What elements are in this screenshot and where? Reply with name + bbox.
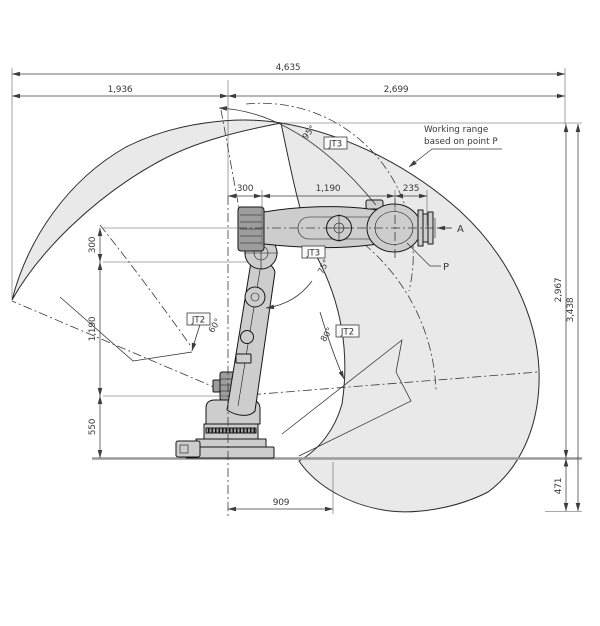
working-range-note-line1: Working range (424, 125, 488, 135)
robot-lower-arm-detail-circle (241, 331, 254, 344)
working-range-note-line2: based on point P (424, 137, 498, 147)
dim-height-upper: 2,967 (554, 278, 564, 303)
dim-height-total: 3,438 (566, 297, 576, 322)
robot-lower-arm-panel (236, 354, 251, 363)
ghost-arm-back-position (60, 297, 192, 361)
robot-working-range-diagram: 4,635 1,936 2,699 300 1,190 235 300 1,19… (0, 0, 600, 626)
jt2-right-angle: 80° (319, 326, 335, 344)
robot-lower-arm-joint (245, 287, 265, 307)
dim-width-left: 1,936 (108, 85, 133, 95)
dim-lower-arm: 1,190 (88, 316, 98, 341)
dim-rear-reach: 909 (273, 498, 290, 508)
working-range-region (12, 120, 539, 512)
robot-base-step (196, 439, 266, 447)
dim-base-height: 550 (88, 418, 98, 435)
dim-depth-below: 471 (554, 478, 564, 495)
working-range-leader (409, 149, 502, 167)
dim-arm-offset: 300 (237, 184, 254, 194)
jt3-mid-label: JT3 (306, 249, 320, 259)
robot-jt1-motor-cap (213, 380, 220, 392)
dim-width-right: 2,699 (384, 85, 409, 95)
jt2-right-label: JT2 (340, 328, 354, 338)
jt3-top-label: JT3 (328, 140, 342, 150)
dim-forearm: 1,190 (316, 184, 341, 194)
point-a-label: A (457, 224, 464, 235)
jt2-left-label: JT2 (191, 316, 205, 326)
dim-total-width: 4,635 (276, 63, 301, 73)
dim-wrist: 235 (403, 184, 420, 194)
dim-shoulder-offset: 300 (88, 236, 98, 253)
point-p-label: P (443, 262, 449, 273)
jt2-left-swing-arc (100, 225, 190, 345)
robot-turntable-gear (206, 428, 256, 433)
